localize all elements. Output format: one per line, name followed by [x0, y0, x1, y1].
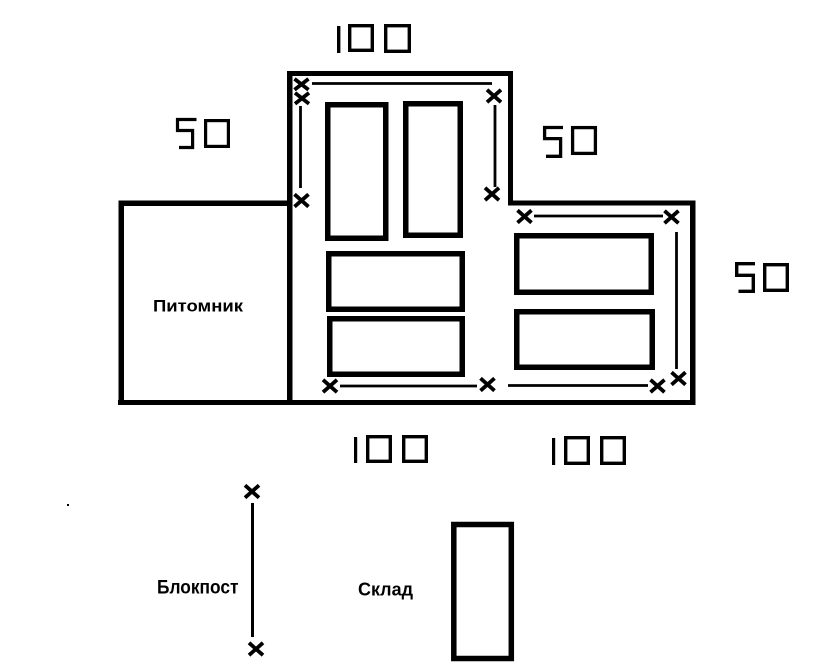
svg-text:Питомник: Питомник [153, 297, 244, 316]
svg-text:Склад: Склад [358, 578, 413, 599]
svg-text:Блокпост: Блокпост [157, 578, 239, 599]
